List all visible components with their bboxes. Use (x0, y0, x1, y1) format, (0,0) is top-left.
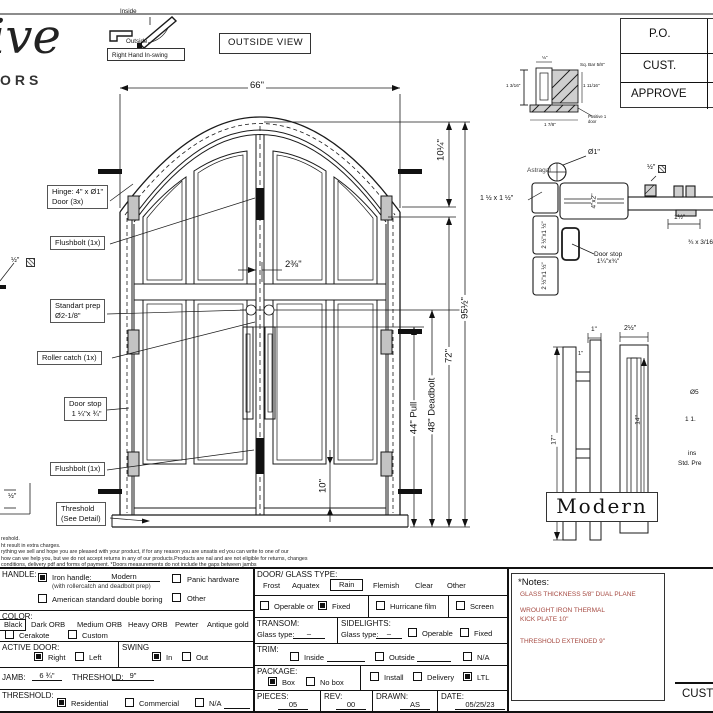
handle-american-label: American standard double boring (52, 595, 163, 604)
dim-deadbolt: 48" Deadbolt (427, 376, 438, 435)
astragal-sq-bar: Sq. Bar 5/8" (580, 62, 605, 67)
pieces-value[interactable]: 05 (278, 700, 308, 710)
dim-kick: 10" (318, 477, 329, 495)
handle-panic-checkbox[interactable] (172, 574, 181, 583)
swing-out-label: Out (196, 653, 208, 662)
pull-frag-1: Ø5 (690, 389, 699, 396)
transom-glass-type-value[interactable]: – (293, 629, 325, 639)
outside-view-box: OUTSIDE VIEW (219, 33, 311, 54)
threshold-na-label: N/A (209, 699, 222, 708)
cust-fragment: CUST (682, 688, 713, 701)
handle-iron-note: (with rollercatch and deadbolt prep) (52, 583, 151, 590)
notes-line2: WROUGHT IRON THERMAL (520, 607, 605, 614)
dimension-lines (120, 85, 470, 527)
section-dia1: Ø1" (588, 149, 600, 157)
pull-dim-17: 17" (551, 433, 558, 447)
jamb-label: JAMB: (2, 673, 26, 682)
drawn-value[interactable]: AS (400, 700, 430, 710)
callout-flushbolt-top: Flushbolt (1x) (50, 236, 105, 250)
astragal-dim-bottom: 1 7/8" (544, 122, 556, 127)
active-left-checkbox[interactable] (75, 652, 84, 661)
transom-glass-type-label: Glass type: (257, 630, 295, 639)
section-doorstop-line1: Door stop (594, 251, 622, 258)
dim-pull: 44" Pull (409, 400, 420, 436)
section-tube-25a: 2 ½"x1 ½" (542, 219, 548, 250)
swing-caption: Right Hand In-swing (112, 52, 188, 59)
spec-sheet: ive ORS Inside Outside Right Hand In-swi… (0, 0, 713, 713)
callout-flushbolt-bottom: Flushbolt (1x) (50, 462, 105, 476)
pull-dim-1b: 1" (578, 351, 583, 357)
active-right-checkbox[interactable] (34, 652, 43, 661)
package-ltl-checkbox[interactable] (463, 672, 472, 681)
glass-hurricane-checkbox[interactable] (376, 601, 385, 610)
threshold-commercial-label: Commercial (139, 699, 179, 708)
sidelights-label: SIDELIGHTS: (341, 619, 391, 628)
style-label: Modern (547, 495, 657, 518)
hatch-square-icon (26, 258, 35, 267)
callout-hinge-line1: Hinge: 4" x Ø1" (52, 187, 103, 197)
notes-line3: KICK PLATE 10" (520, 616, 568, 623)
dim-backset: 2⅜" (283, 260, 304, 271)
swing-inside-label: Inside (120, 8, 137, 15)
threshold-commercial-checkbox[interactable] (125, 698, 134, 707)
glass-type-label: DOOR/ GLASS TYPE: (257, 570, 337, 579)
astragal-caption: Astragal (527, 167, 551, 174)
sidelights-operable-label: Operable (422, 629, 453, 638)
sidelights-glass-type-label: Glass type: (341, 630, 379, 639)
fine-print-line3: rything we sell and hope you are pleased… (1, 549, 289, 555)
callout-doorstop-line2: 1 ¼"x ¾" (69, 409, 102, 419)
dim-width: 66" (248, 81, 266, 92)
pull-frag-3: ins (688, 450, 696, 457)
sidelights-fixed-label: Fixed (474, 629, 492, 638)
section-doorstop: Door stop 1¼"x¾" (594, 251, 622, 266)
swing-label: SWING (122, 643, 149, 652)
package-box-checkbox[interactable] (268, 677, 277, 686)
handle-panic-label: Panic hardware (187, 575, 239, 584)
section-seal-icon (658, 165, 666, 173)
section-tube-25b: 2 ½"x1 ½" (542, 260, 548, 291)
approval-cust: CUST. (643, 60, 676, 73)
astragal-dim-left: 1 3/16" (506, 83, 520, 88)
sidelights-fixed-checkbox[interactable] (460, 628, 469, 637)
package-install-label: Install (384, 673, 404, 682)
package-nobox-label: No box (320, 678, 344, 687)
pull-dim-14: 14" (635, 413, 642, 427)
package-install-checkbox[interactable] (370, 672, 379, 681)
style-box: Modern (546, 492, 658, 522)
package-ltl-label: LTL (477, 673, 489, 682)
glass-option-flemish[interactable]: Flemish (373, 581, 399, 590)
section-dim-15: 1½" (674, 214, 685, 221)
glass-option-frost[interactable]: Frost (263, 581, 280, 590)
astragal-dim-top: ⅛" (542, 55, 547, 60)
rev-value[interactable]: 00 (336, 700, 366, 710)
section-tube-sq: 1 ½ x 1 ½" (480, 195, 513, 203)
package-delivery-label: Delivery (427, 673, 454, 682)
trim-inside-label: Inside (304, 653, 324, 662)
glass-operable-label: Operable or (274, 602, 314, 611)
glass-hurricane-label: Hurricane film (390, 602, 436, 611)
glass-fixed-label: Fixed (332, 602, 350, 611)
handle-american-checkbox[interactable] (38, 594, 47, 603)
color-option-heavyorb[interactable]: Heavy ORB (128, 620, 168, 629)
color-option-antiquegold[interactable]: Antique gold (207, 620, 249, 629)
section-tube-4x2: 4"x2" (591, 191, 598, 210)
handle-iron-value[interactable]: Modern (88, 572, 160, 582)
swing-out-checkbox[interactable] (182, 652, 191, 661)
threshold-residential-label: Residential (71, 699, 108, 708)
pull-dim-1a: 1" (591, 326, 597, 333)
handle-iron-checkbox[interactable] (38, 573, 47, 582)
jamb-section-detail (528, 156, 713, 295)
trim-inside-checkbox[interactable] (290, 652, 299, 661)
astragal-dim-right: 1 11/16" (583, 83, 600, 88)
approval-table: P.O. CUST. APPROVE (620, 18, 713, 108)
section-frag-34: ¾ x 3/16" (688, 239, 713, 246)
color-cerakote-checkbox[interactable] (5, 630, 14, 639)
glass-option-other[interactable]: Other (447, 581, 466, 590)
date-value[interactable]: 05/25/23 (455, 700, 505, 710)
handle-other-checkbox[interactable] (172, 593, 181, 602)
trim-outside-label: Outside (389, 653, 415, 662)
fragment-half-dia: ½" (11, 257, 19, 265)
glass-option-aquatex[interactable]: Aquatex (292, 581, 320, 590)
callout-prep-line1: Standart prep (55, 301, 100, 311)
glass-fixed-checkbox[interactable] (318, 601, 327, 610)
swing-in-checkbox[interactable] (152, 652, 161, 661)
callout-doorstop-line1: Door stop (69, 399, 102, 409)
color-option-pewter[interactable]: Pewter (175, 620, 198, 629)
package-box-label: Box (282, 678, 295, 687)
approval-po: P.O. (649, 28, 671, 41)
trim-na-checkbox[interactable] (463, 652, 472, 661)
dim-height: 95½" (460, 295, 471, 321)
active-left-label: Left (89, 653, 102, 662)
transom-label: TRANSOM: (257, 619, 299, 628)
callout-threshold-line1: Threshold (61, 504, 101, 514)
swing-in-label: In (166, 653, 172, 662)
active-right-label: Right (48, 653, 66, 662)
color-cerakote-label: Cerakote (19, 631, 49, 640)
fine-print-line4: how can we help you, but we do not accep… (1, 556, 308, 562)
dim-leaf: 72" (444, 347, 455, 365)
pull-dim-25: 2½" (624, 325, 636, 333)
logo-sub: ORS (0, 72, 42, 88)
trim-na-label: N/A (477, 653, 490, 662)
dim-arch: 10¼" (436, 137, 447, 163)
swing-outside-label: Outside (126, 38, 147, 45)
jamb-threshold-value[interactable]: 9" (112, 671, 154, 681)
notes-box: *Notes: GLASS THICKNESS 5/8" DUAL PLANE … (511, 573, 665, 701)
section-half-seal: ½" (647, 164, 655, 172)
fine-print-line2: ht result in extra charges. (1, 543, 60, 549)
outside-view-label: OUTSIDE VIEW (228, 38, 318, 49)
color-option-darkorb[interactable]: Dark ORB (31, 620, 65, 629)
callout-prep-line2: Ø2-1/8" (55, 311, 100, 321)
callout-door-stop: Door stop 1 ¼"x ¾" (64, 397, 107, 421)
callout-hinge-line2: Door (3x) (52, 197, 103, 207)
threshold-na-checkbox[interactable] (195, 698, 204, 707)
threshold-label: THRESHOLD: (2, 691, 54, 700)
section-doorstop-line2: 1¼"x¾" (594, 258, 622, 265)
logo-script: ive (0, 10, 61, 65)
sidelights-operable-checkbox[interactable] (408, 628, 417, 637)
pull-frag-4: Std. Pre (678, 460, 701, 467)
swing-caption-box: Right Hand In-swing (107, 48, 185, 61)
trim-label: TRIM: (257, 645, 279, 654)
package-nobox-checkbox[interactable] (306, 677, 315, 686)
pull-frag-2: 1 1. (685, 416, 696, 423)
glass-option-clear[interactable]: Clear (415, 581, 433, 590)
notes-line1: GLASS THICKNESS 5/8" DUAL PLANE (520, 591, 636, 598)
glass-option-rain[interactable]: Rain (330, 579, 363, 591)
active-door-label: ACTIVE DOOR: (2, 643, 59, 652)
notes-line4: THRESHOLD EXTENDED 9" (520, 638, 605, 645)
fragment-half-threshold: ½" (8, 493, 16, 501)
callout-hinge: Hinge: 4" x Ø1" Door (3x) (47, 185, 108, 209)
callout-standard-prep: Standart prep Ø2-1/8" (50, 299, 105, 323)
jamb-value[interactable]: 6 ¾" (32, 671, 62, 681)
color-custom-label: Custom (82, 631, 108, 640)
color-custom-checkbox[interactable] (68, 630, 77, 639)
astragal-positive: Positive 1 door (588, 114, 610, 124)
trim-outside-checkbox[interactable] (375, 652, 384, 661)
handle-iron-label: Iron handle: (52, 573, 92, 582)
callout-roller-catch: Roller catch (1x) (37, 351, 102, 365)
glass-screen-checkbox[interactable] (456, 601, 465, 610)
package-delivery-checkbox[interactable] (413, 672, 422, 681)
package-label: PACKAGE: (257, 667, 297, 676)
handle-label: HANDLE: (2, 570, 37, 579)
glass-screen-label: Screen (470, 602, 494, 611)
notes-title: *Notes: (518, 578, 549, 589)
callout-threshold-line2: (See Detail) (61, 514, 101, 524)
callout-threshold: Threshold (See Detail) (56, 502, 106, 526)
fine-print-line1: reshold. (1, 536, 20, 542)
approval-approve: APPROVE (631, 88, 687, 101)
astragal-detail (520, 62, 592, 120)
handle-other-label: Other (187, 594, 206, 603)
glass-operable-checkbox[interactable] (260, 601, 269, 610)
color-option-mediumorb[interactable]: Medium ORB (77, 620, 122, 629)
sidelights-glass-type-value[interactable]: – (376, 629, 402, 639)
threshold-residential-checkbox[interactable] (57, 698, 66, 707)
